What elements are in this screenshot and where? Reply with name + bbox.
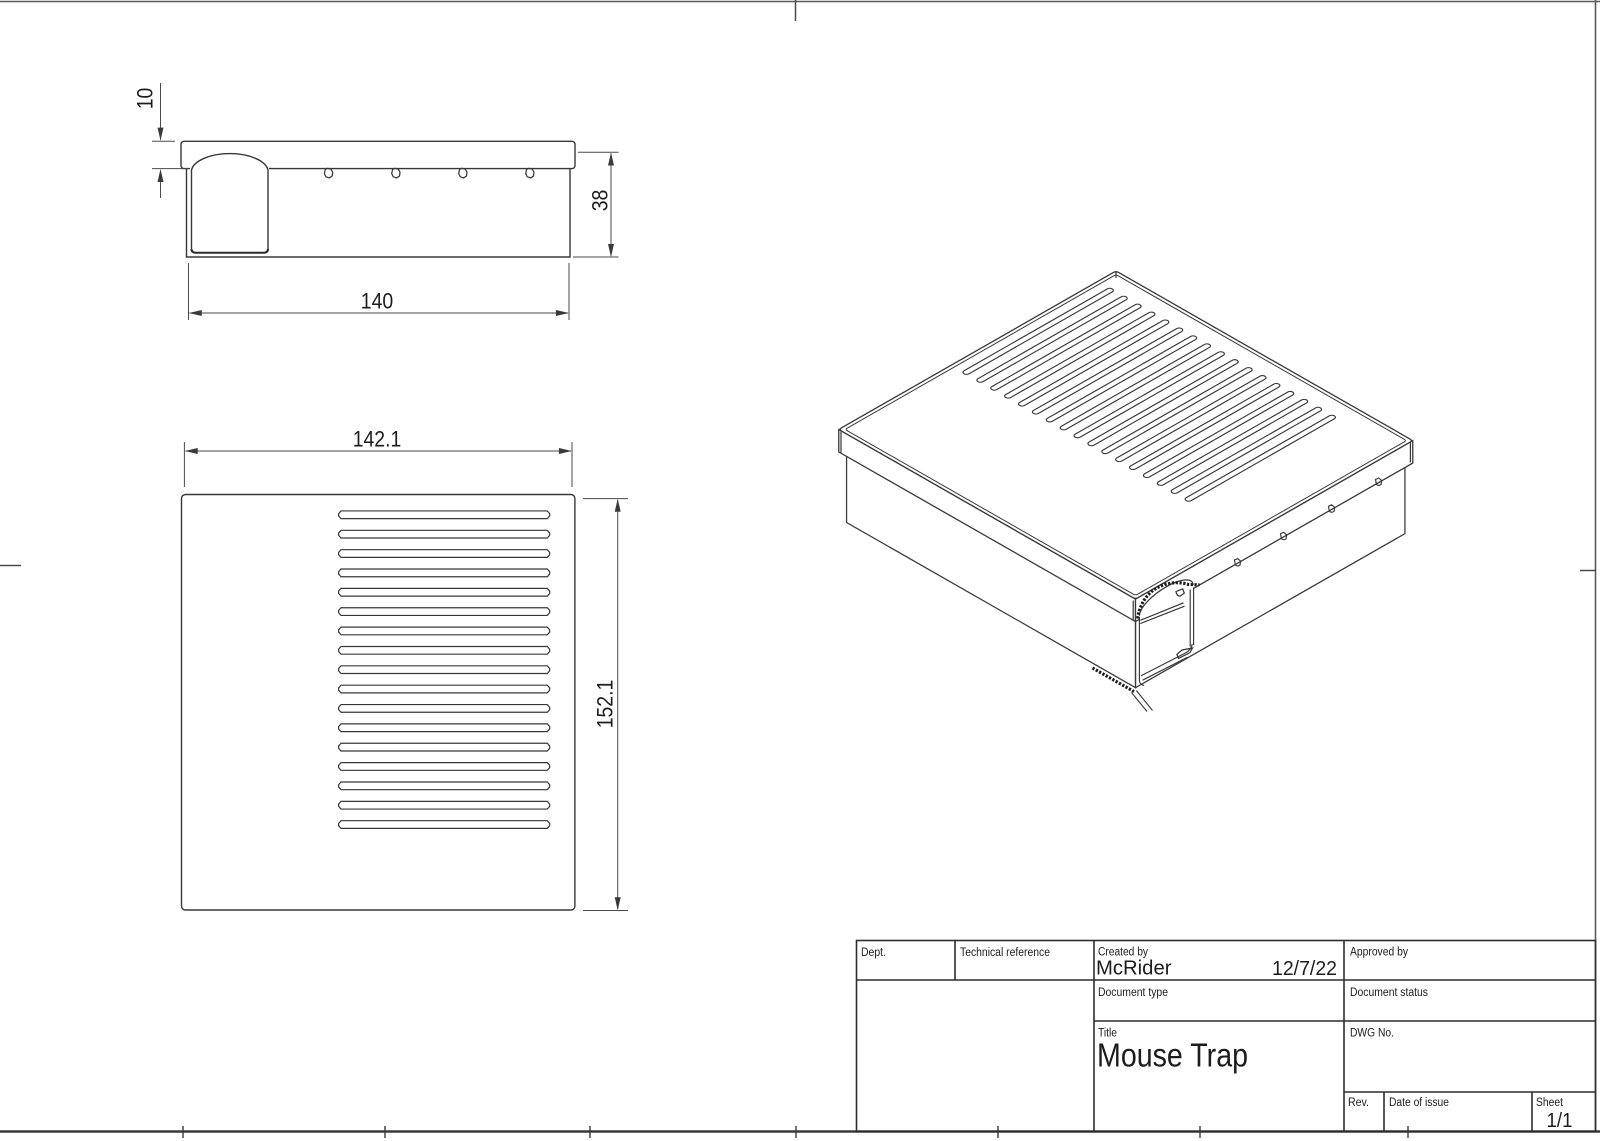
svg-text:Date of issue: Date of issue (1389, 1097, 1449, 1109)
svg-text:McRider: McRider (1096, 958, 1172, 980)
svg-text:1/1: 1/1 (1547, 1109, 1573, 1132)
svg-text:DWG No.: DWG No. (1350, 1027, 1394, 1039)
svg-text:Mouse Trap: Mouse Trap (1097, 1037, 1248, 1074)
svg-text:Dept.: Dept. (861, 947, 886, 959)
svg-text:10: 10 (133, 88, 158, 110)
svg-text:152.1: 152.1 (593, 680, 618, 729)
svg-text:Document status: Document status (1350, 987, 1428, 999)
svg-text:Technical reference: Technical reference (960, 947, 1050, 959)
svg-text:Document type: Document type (1098, 987, 1168, 999)
svg-text:Approved by: Approved by (1350, 947, 1408, 959)
svg-text:12/7/22: 12/7/22 (1272, 957, 1337, 980)
svg-text:140: 140 (361, 289, 394, 314)
svg-text:142.1: 142.1 (353, 427, 402, 452)
svg-text:Sheet: Sheet (1536, 1097, 1564, 1109)
svg-text:Rev.: Rev. (1348, 1097, 1369, 1109)
svg-text:38: 38 (588, 190, 613, 212)
